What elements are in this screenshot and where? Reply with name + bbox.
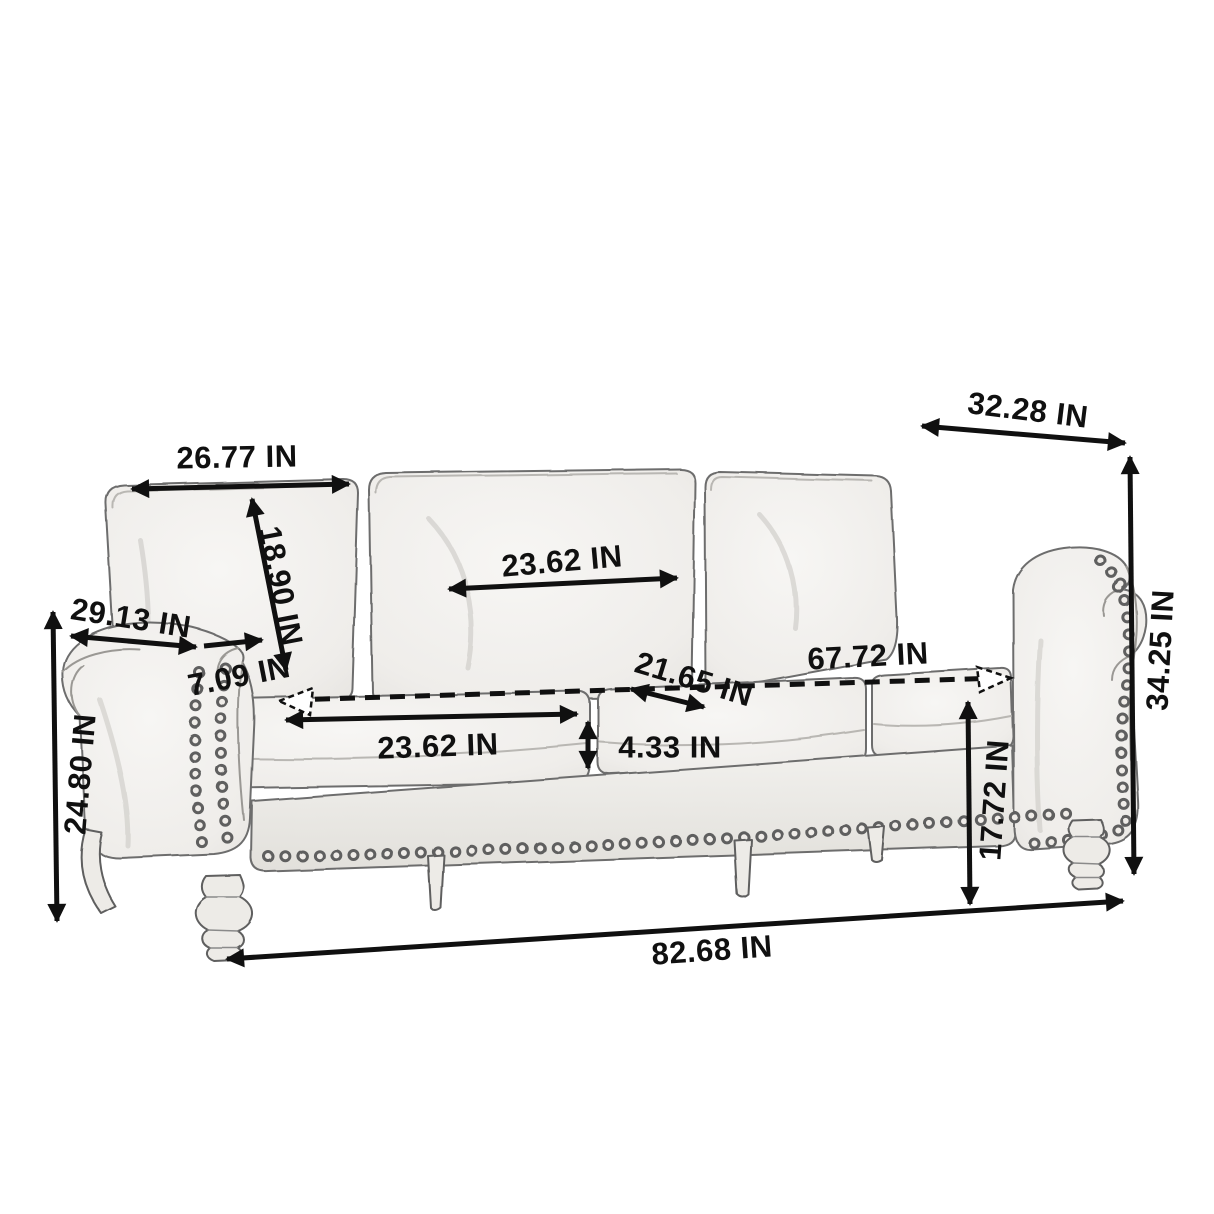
dimension-label-back-cushion-width: 26.77 IN [176, 440, 298, 473]
dimension-label-seat-height: 17.72 IN [974, 738, 1013, 861]
dimension-label-overall-width: 82.68 IN [650, 930, 773, 969]
sofa-dimension-diagram: 26.77 IN 18.90 IN 29.13 IN 7.09 IN 23.62… [0, 0, 1214, 1214]
sofa-illustration [0, 0, 1214, 1214]
dimension-label-inner-seat-width: 67.72 IN [807, 637, 930, 674]
dimension-label-seat-cushion-thickness: 4.33 IN [618, 732, 721, 763]
dimension-label-seat-cushion-width: 23.62 IN [377, 728, 499, 763]
dimension-label-overall-height: 34.25 IN [1141, 589, 1178, 712]
